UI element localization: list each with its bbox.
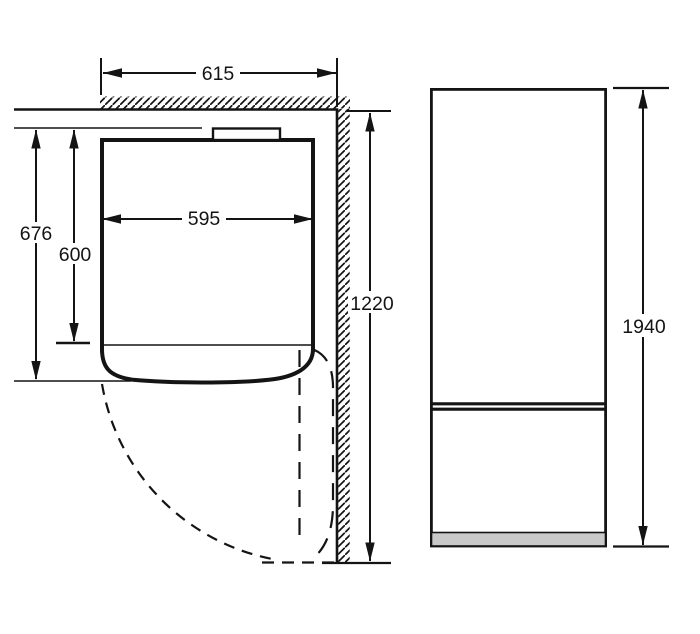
arrowhead-down-icon: [365, 543, 374, 562]
arrowhead-up-icon: [69, 130, 78, 149]
arrowhead-right-icon: [317, 68, 336, 78]
door-swing-arc: [102, 384, 272, 559]
plinth-strip: [432, 533, 606, 547]
arrowhead-up-icon: [638, 90, 647, 109]
dim-label-depth-with-clearance: 676: [20, 223, 53, 245]
dim-label-side-wall-length: 1220: [350, 293, 394, 315]
arrowhead-up-icon: [31, 130, 40, 149]
dim-label-appliance-height: 1940: [622, 316, 666, 338]
diagram-canvas: 615 595 676 600: [0, 0, 700, 634]
top-view: 615 595 676 600: [14, 58, 395, 563]
arrowhead-down-icon: [31, 361, 40, 380]
arrowhead-left-icon: [103, 68, 122, 78]
arrowhead-right-icon: [294, 214, 313, 224]
arrowhead-down-icon: [638, 526, 647, 545]
rear-spacer-box: [213, 129, 280, 141]
arrowhead-left-icon: [102, 214, 121, 224]
arrowhead-down-icon: [69, 323, 78, 342]
installation-diagram: 615 595 676 600: [0, 0, 700, 634]
open-door-outer-face-dashed: [314, 350, 333, 558]
appliance-body-outline-front: [431, 89, 605, 546]
back-wall-hatching: [100, 97, 350, 109]
side-wall-hatching: [338, 109, 350, 563]
arrowhead-up-icon: [365, 113, 374, 132]
appliance-body-outline-top: [102, 140, 313, 352]
dim-label-appliance-depth: 600: [59, 244, 92, 266]
dimension-595: 595: [102, 208, 313, 230]
dimension-1940: 1940: [613, 88, 670, 547]
dim-label-niche-width: 615: [202, 63, 235, 85]
dim-label-appliance-width: 595: [188, 208, 221, 230]
dimension-600: 600: [55, 130, 95, 344]
door-front-curve: [102, 349, 313, 383]
front-view: 1940: [431, 88, 670, 547]
